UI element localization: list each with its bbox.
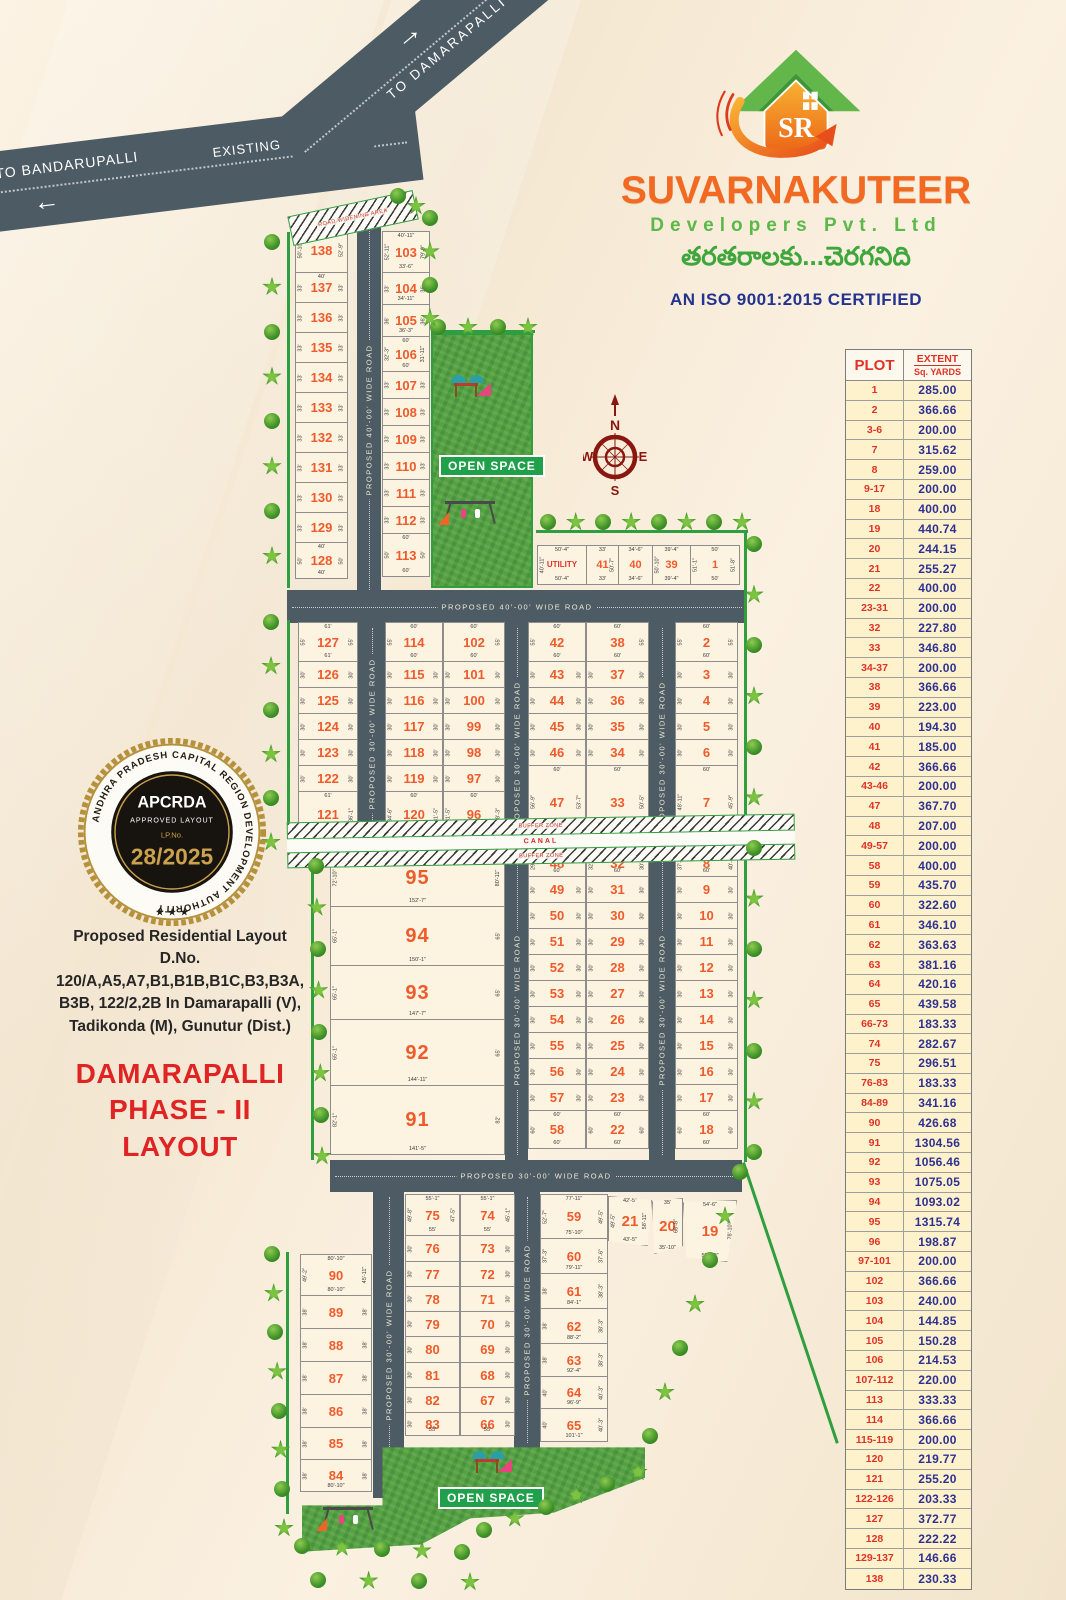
- plot-number: 89: [329, 1306, 343, 1319]
- table-extent-cell: 144.85: [904, 1311, 971, 1330]
- road-label: PROPOSED 30'-00' WIDE ROAD: [384, 1265, 393, 1424]
- dimension-label: 30': [678, 671, 684, 678]
- plot-number: 33: [610, 796, 624, 809]
- plot-cell: 11630'30': [385, 687, 443, 714]
- dimension-label: 60': [553, 1141, 560, 1147]
- bush-tree-icon: [651, 514, 667, 530]
- playground-icon: [470, 1451, 514, 1477]
- plot-cell: 10260'60'55': [443, 622, 505, 662]
- dimension-label: 34'-11": [398, 297, 415, 303]
- table-plot-cell: 1: [846, 381, 904, 400]
- plot-cell: 7630': [405, 1235, 460, 1262]
- plot-cell: 5230'30': [528, 954, 586, 981]
- plot-number: 1: [712, 560, 718, 571]
- description-line: Tadikonda (M), Gunutur (Dist.): [36, 1016, 324, 1038]
- dimension-label: 30': [589, 1094, 595, 1101]
- brand-name: SUVARNAKUTEER: [612, 171, 980, 212]
- plot-number: 110: [396, 460, 417, 473]
- plot-number: 80: [425, 1343, 439, 1356]
- table-extent-cell: 1075.05: [904, 1173, 971, 1192]
- dimension-label: 30': [506, 1420, 512, 1427]
- table-plot-cell: 103: [846, 1292, 904, 1311]
- bush-tree-icon: [595, 514, 611, 530]
- table-row: 40194.30: [846, 718, 971, 738]
- proposed-road: PROPOSED 40'-00' WIDE ROAD: [287, 590, 747, 623]
- dimension-label: 60': [614, 654, 621, 660]
- plot-cell: 8538'38': [300, 1427, 372, 1460]
- dimension-label: 144'-11": [408, 1078, 428, 1084]
- table-plot-cell: 95: [846, 1212, 904, 1231]
- palm-tree-icon: [262, 277, 282, 297]
- col-114-120: 11460'60'55'11530'30'11630'30'11730'30'1…: [385, 623, 443, 838]
- dimension-label: 30': [531, 723, 537, 730]
- dimension-label: 30': [301, 723, 307, 730]
- road-label: PROPOSED 30'-00' WIDE ROAD: [512, 930, 521, 1089]
- dimension-label: 30': [408, 1420, 414, 1427]
- plot-number: 59: [567, 1210, 581, 1223]
- plot-cell: 12840'40'50'50': [295, 542, 348, 579]
- dimension-label: 79'-11": [566, 1266, 583, 1272]
- layout-description: Proposed Residential Layout D.No. 120/A,…: [36, 926, 324, 1038]
- plot-number: 53: [550, 987, 564, 1000]
- table-plot-cell: 41: [846, 737, 904, 756]
- dimension-label: 38'-3": [599, 1284, 605, 1298]
- right-arrow-icon: →: [388, 15, 427, 54]
- dimension-label: 30': [446, 671, 452, 678]
- dimension-label: 30': [506, 1396, 512, 1403]
- plot-cell: 9730'30': [443, 765, 505, 792]
- table-row: 1285.00: [846, 381, 971, 401]
- dimension-label: 60': [553, 768, 560, 774]
- dimension-label: 30': [349, 671, 355, 678]
- plot-cell: 4630'30': [528, 739, 586, 766]
- dimension-label: 60': [553, 1113, 560, 1119]
- dimension-label: 33': [421, 462, 427, 469]
- plot-number: 14: [699, 1013, 713, 1026]
- dimension-label: 33': [385, 489, 391, 496]
- dimension-label: 30': [531, 749, 537, 756]
- plot-cell: 4430'30': [528, 687, 586, 714]
- dimension-label: 33': [421, 516, 427, 523]
- table-extent-cell: 200.00: [904, 599, 971, 618]
- dimension-label: 50': [298, 557, 304, 564]
- dimension-label: 55': [496, 638, 502, 645]
- dimension-label: 30': [408, 1320, 414, 1327]
- plot-number: 84: [329, 1469, 343, 1482]
- plot-number: 41: [596, 560, 608, 571]
- table-plot-cell: 66-73: [846, 1015, 904, 1034]
- plot-number: 70: [480, 1318, 494, 1331]
- dimension-label: 38': [363, 1472, 369, 1479]
- dimension-label: 65'-1": [333, 929, 339, 943]
- dimension-label: 30': [506, 1295, 512, 1302]
- dimension-label: 40'-3": [599, 1418, 605, 1432]
- col-8-18: 860'-1"60'37'-3"40'-5"930'30'1030'30'113…: [675, 850, 738, 1149]
- plot-number: 79: [425, 1318, 439, 1331]
- table-plot-cell: 127: [846, 1509, 904, 1528]
- dimension-label: 30': [301, 671, 307, 678]
- plot-number: 132: [311, 431, 333, 444]
- compass-n: N: [610, 417, 620, 433]
- table-extent-cell: 367.70: [904, 797, 971, 816]
- plot-cell: 13740'33'33': [295, 272, 348, 303]
- dimension-label: 65': [496, 1049, 502, 1056]
- dimension-label: 60': [470, 654, 477, 660]
- dimension-label: 38': [363, 1407, 369, 1414]
- plot-number: 82: [425, 1394, 439, 1407]
- table-extent-cell: 230.33: [904, 1569, 971, 1589]
- dimension-label: 30': [640, 1016, 646, 1023]
- col-59-65: 5977'-11"75'-10"52'-7"49'-5"6079'-11"37'…: [540, 1195, 608, 1442]
- table-plot-cell: 33: [846, 638, 904, 657]
- table-plot-cell: 114: [846, 1410, 904, 1429]
- dimension-label: 33': [339, 404, 345, 411]
- plot-cell: 6392'-4"38'38'-3": [540, 1343, 608, 1377]
- plot-number: 76: [425, 1242, 439, 1255]
- plot-cell: 8355'30': [405, 1412, 460, 1436]
- table-row: 7315.62: [846, 440, 971, 460]
- palm-tree-icon: [732, 512, 752, 532]
- dimension-label: 49'-2": [303, 1268, 309, 1282]
- table-plot-cell: 74: [846, 1034, 904, 1053]
- dimension-label: 33': [298, 314, 304, 321]
- dimension-label: 38': [543, 1322, 549, 1329]
- dimension-label: 38': [363, 1341, 369, 1348]
- table-plot-cell: 63: [846, 955, 904, 974]
- plot-cell: 3030'30': [586, 902, 649, 929]
- dimension-label: 30': [640, 990, 646, 997]
- plot-cell: 11730'30': [385, 713, 443, 740]
- plot-cell: 5030'30': [528, 902, 586, 929]
- layout-poster: TO BANDARUPALLI ← EXISTING 80' B.T ROAD …: [0, 0, 1066, 1600]
- plot-cell: 5430'30': [528, 1006, 586, 1033]
- palm-tree-icon: [744, 585, 764, 605]
- table-plot-cell: 61: [846, 916, 904, 935]
- proposed-road: PROPOSED 40'-00' WIDE ROAD: [357, 215, 381, 625]
- plot-number: 2: [703, 636, 710, 649]
- plot-cell: 4930'30': [528, 876, 586, 903]
- dimension-label: 30': [729, 1068, 735, 1075]
- dimension-label: 30': [678, 723, 684, 730]
- plot-cell: 1330'30': [675, 980, 738, 1007]
- table-extent-cell: 200.00: [904, 1252, 971, 1271]
- col-74-66: 7455'-1"55'45'-1"7330'7230'7130'7030'693…: [460, 1195, 515, 1436]
- plot-cell: 9080'-10"80'-10"49'-2"45'-11": [300, 1254, 372, 1296]
- table-extent-cell: 420.16: [904, 975, 971, 994]
- table-extent-cell: 366.66: [904, 757, 971, 776]
- plot-number: 51: [550, 935, 564, 948]
- plot-number: 7: [703, 796, 710, 809]
- dimension-label: 30': [531, 1042, 537, 1049]
- iso-certification-text: AN ISO 9001:2015 CERTIFIED: [612, 290, 980, 310]
- dimension-label: 31'-11": [421, 346, 427, 363]
- dimension-label: 30': [531, 964, 537, 971]
- dimension-label: 33': [298, 344, 304, 351]
- table-extent-cell: 194.30: [904, 718, 971, 737]
- plot-cell: 430'30': [675, 687, 738, 714]
- dimension-label: 30': [589, 671, 595, 678]
- dimension-label: 50'-4": [555, 577, 569, 583]
- table-row: 49-57200.00: [846, 836, 971, 856]
- table-extent-cell: 200.00: [904, 777, 971, 796]
- road-label: PROPOSED 30'-00' WIDE ROAD: [512, 678, 521, 837]
- dimension-label: 33': [339, 434, 345, 441]
- dimension-label: 33': [339, 494, 345, 501]
- plot-number: 15: [699, 1039, 713, 1052]
- dimension-label: 50'-10": [655, 556, 661, 573]
- dimension-label: 30': [729, 964, 735, 971]
- table-extent-cell: 315.62: [904, 440, 971, 459]
- table-extent-cell: 183.33: [904, 1015, 971, 1034]
- table-header-extent-label: EXTENT: [914, 353, 961, 366]
- dimension-label: 51'-1": [693, 558, 699, 572]
- dimension-label: 30': [678, 1042, 684, 1049]
- dimension-label: 50'-7": [610, 558, 616, 572]
- table-extent-cell: 346.10: [904, 916, 971, 935]
- plot-cell: 5330'30': [528, 980, 586, 1007]
- dimension-label: 30': [506, 1270, 512, 1277]
- dimension-label: 30': [678, 964, 684, 971]
- dimension-label: 33': [298, 374, 304, 381]
- plot-cell: 13033'33': [295, 482, 348, 513]
- swing-set-icon: [323, 1507, 373, 1531]
- dimension-label: 30': [577, 749, 583, 756]
- dimension-label: 60': [703, 768, 710, 774]
- dimension-label: 30': [640, 938, 646, 945]
- plot-cell: 65101'-1"40'40'-3": [540, 1408, 608, 1442]
- dimension-label: 30': [408, 1270, 414, 1277]
- plot-number: 104: [395, 282, 417, 295]
- proposed-road: PROPOSED 30'-00' WIDE ROADPROPOSED 30'-0…: [505, 623, 528, 1160]
- plot-number: 99: [467, 720, 481, 733]
- brand-tagline-telugu: తరతరాలకు...చెరగనిది: [612, 241, 980, 278]
- plot-cell: 13433'33': [295, 362, 348, 393]
- palm-tree-icon: [267, 1361, 287, 1381]
- dimension-label: 30': [531, 886, 537, 893]
- dimension-label: 60': [402, 569, 409, 575]
- table-extent-cell: 1304.56: [904, 1133, 971, 1152]
- table-plot-cell: 32: [846, 619, 904, 638]
- table-extent-cell: 200.00: [904, 421, 971, 440]
- bush-tree-icon: [264, 324, 280, 340]
- dimension-label: 78'-10": [728, 1222, 734, 1239]
- table-row: 121255.20: [846, 1470, 971, 1490]
- table-plot-cell: 3-6: [846, 421, 904, 440]
- dimension-label: 38': [363, 1374, 369, 1381]
- plot-cell: 11133'33': [382, 479, 430, 507]
- dimension-label: 33': [385, 381, 391, 388]
- dimension-label: 55'-1": [480, 1197, 494, 1203]
- dimension-label: 30': [589, 990, 595, 997]
- plot-number: 45: [550, 720, 564, 733]
- plot-number: 67: [480, 1394, 494, 1407]
- plot-cell: 1430'30': [675, 1006, 738, 1033]
- plot-number: 16: [699, 1065, 713, 1078]
- plot-number: 116: [404, 694, 425, 707]
- dimension-label: 60': [410, 625, 417, 631]
- plot-cell: 8230': [405, 1387, 460, 1413]
- dimension-label: 38': [303, 1407, 309, 1414]
- dimension-label: 30': [446, 775, 452, 782]
- plot-cell: 330'30': [675, 661, 738, 688]
- palm-tree-icon: [307, 897, 327, 917]
- table-plot-cell: 138: [846, 1569, 904, 1589]
- table-plot-cell: 75: [846, 1054, 904, 1073]
- dimension-label: 34'-6": [388, 807, 394, 821]
- table-header-unit-label: Sq. YARDS: [914, 367, 961, 377]
- table-plot-cell: 92: [846, 1153, 904, 1172]
- table-row: 3-6200.00: [846, 421, 971, 441]
- plot-cell: 7830': [405, 1286, 460, 1312]
- bush-tree-icon: [746, 1043, 762, 1059]
- plot-number: 56: [550, 1065, 564, 1078]
- dimension-label: 33': [385, 435, 391, 442]
- table-plot-cell: 113: [846, 1391, 904, 1410]
- dimension-label: 33': [385, 462, 391, 469]
- plot-number: 137: [311, 281, 333, 294]
- dimension-label: 55': [678, 638, 684, 645]
- plot-number: 36: [610, 694, 624, 707]
- table-row: 74282.67: [846, 1034, 971, 1054]
- table-plot-cell: 104: [846, 1311, 904, 1330]
- table-extent-cell: 220.00: [904, 1371, 971, 1390]
- table-plot-cell: 34-37: [846, 658, 904, 677]
- proposed-road: PROPOSED 30'-00' WIDE ROAD: [514, 1192, 540, 1448]
- dimension-label: 52'-11": [385, 244, 391, 261]
- dimension-label: 33': [599, 548, 606, 554]
- plot-number: 130: [311, 491, 333, 504]
- dimension-label: 61': [324, 625, 331, 631]
- plot-cell: 3860'60'55': [586, 622, 649, 662]
- dimension-label: 30': [589, 912, 595, 919]
- plot-cell: 12530'30': [298, 687, 358, 714]
- dimension-label: 30': [678, 1094, 684, 1101]
- dimension-label: 42'-5": [623, 1199, 637, 1205]
- table-body: 1285.002366.663-6200.007315.628259.009-1…: [846, 381, 971, 1589]
- table-extent-cell: 259.00: [904, 460, 971, 479]
- bush-tree-icon: [264, 413, 280, 429]
- table-row: 120219.77: [846, 1450, 971, 1470]
- plot-number: 49: [550, 883, 564, 896]
- plot-cell: 93147'-7"65'-1"65': [330, 965, 505, 1020]
- title-line: DAMARAPALLI: [36, 1056, 324, 1092]
- dimension-label: 80'-11": [496, 870, 502, 887]
- table-plot-cell: 105: [846, 1331, 904, 1350]
- plot-cell: 930'30': [675, 876, 738, 903]
- table-extent-cell: 400.00: [904, 856, 971, 875]
- compass-s: S: [611, 483, 620, 498]
- table-extent-cell: 341.16: [904, 1094, 971, 1113]
- dimension-label: 30': [349, 697, 355, 704]
- dimension-label: 30': [678, 749, 684, 756]
- dimension-label: 60': [703, 654, 710, 660]
- table-row: 23-31200.00: [846, 599, 971, 619]
- table-row: 127372.77: [846, 1509, 971, 1529]
- dimension-label: 60': [703, 869, 710, 875]
- plot-cell: 4034'-6"34'-6": [618, 545, 653, 585]
- table-plot-cell: 40: [846, 718, 904, 737]
- dimension-label: 30': [589, 1068, 595, 1075]
- table-row: 64420.16: [846, 975, 971, 995]
- dimension-label: 38': [543, 1356, 549, 1363]
- plot-cell: 2035'35'-10"66'-8": [652, 1198, 683, 1254]
- plot-cell: 630'30': [675, 739, 738, 766]
- site-boundary-line: [286, 1252, 289, 1514]
- table-extent-cell: 435.70: [904, 876, 971, 895]
- table-plot-cell: 128: [846, 1529, 904, 1548]
- playground-icon: [449, 375, 493, 401]
- dimension-label: 40': [543, 1389, 549, 1396]
- bush-tree-icon: [294, 1538, 310, 1554]
- plot-number: 46: [550, 746, 564, 759]
- plot-cell: 2830'30': [586, 954, 649, 981]
- dimension-label: 33': [385, 408, 391, 415]
- dimension-label: 30': [589, 697, 595, 704]
- dimension-label: 30': [577, 671, 583, 678]
- plot-cell: 2930'30': [586, 928, 649, 955]
- dimension-label: 51'-8": [731, 558, 737, 572]
- dimension-label: 30': [640, 671, 646, 678]
- plot-cell: 6930': [460, 1336, 515, 1363]
- table-plot-cell: 107-112: [846, 1371, 904, 1390]
- table-plot-cell: 93: [846, 1173, 904, 1192]
- plot-number: 58: [550, 1123, 564, 1136]
- dimension-label: 30': [577, 1094, 583, 1101]
- plot-number: 94: [405, 926, 429, 946]
- plot-cell: 9830'30': [443, 739, 505, 766]
- dimension-label: 80'-10": [327, 1257, 344, 1263]
- dimension-label: 30': [496, 723, 502, 730]
- dimension-label: 30': [577, 938, 583, 945]
- plot-number: 103: [395, 246, 417, 259]
- palm-tree-icon: [274, 1518, 294, 1538]
- table-extent-cell: 363.63: [904, 935, 971, 954]
- dimension-label: 34'-6": [628, 548, 642, 554]
- plot-number: 39: [665, 560, 677, 571]
- bush-tree-icon: [454, 1544, 470, 1560]
- table-row: 931075.05: [846, 1173, 971, 1193]
- seal-lp-number: 28/2025: [131, 843, 214, 869]
- table-extent-cell: 366.66: [904, 1410, 971, 1429]
- plot-cell: 11033'33': [382, 452, 430, 480]
- dimension-label: 33': [339, 464, 345, 471]
- table-row: 129-137146.66: [846, 1549, 971, 1569]
- plot-number: 11: [700, 935, 714, 948]
- dimension-label: 55': [640, 638, 646, 645]
- plot-cell: 12630'30': [298, 661, 358, 688]
- dimension-label: 30': [496, 697, 502, 704]
- plot-number: 29: [610, 935, 624, 948]
- dimension-label: 60': [678, 1126, 684, 1133]
- bush-tree-icon: [264, 234, 280, 250]
- dimension-label: 101'-1": [565, 1434, 582, 1440]
- dimension-label: 55': [484, 1428, 491, 1434]
- dimension-label: 60': [614, 1113, 621, 1119]
- table-row: 62363.63: [846, 935, 971, 955]
- dimension-label: 55': [429, 1428, 436, 1434]
- dimension-label: 30': [496, 775, 502, 782]
- plot-cell: 10660'60'32'-3"31'-11": [382, 336, 430, 372]
- table-extent-cell: 282.67: [904, 1034, 971, 1053]
- table-plot-cell: 19: [846, 520, 904, 539]
- dimension-label: 65'-1": [333, 985, 339, 999]
- plot-number: 72: [480, 1268, 494, 1281]
- plot-number: 17: [699, 1091, 713, 1104]
- table-plot-cell: 58: [846, 856, 904, 875]
- site-boundary-line: [287, 620, 290, 845]
- dimension-label: 53'-7": [577, 795, 583, 809]
- dimension-label: 30': [678, 990, 684, 997]
